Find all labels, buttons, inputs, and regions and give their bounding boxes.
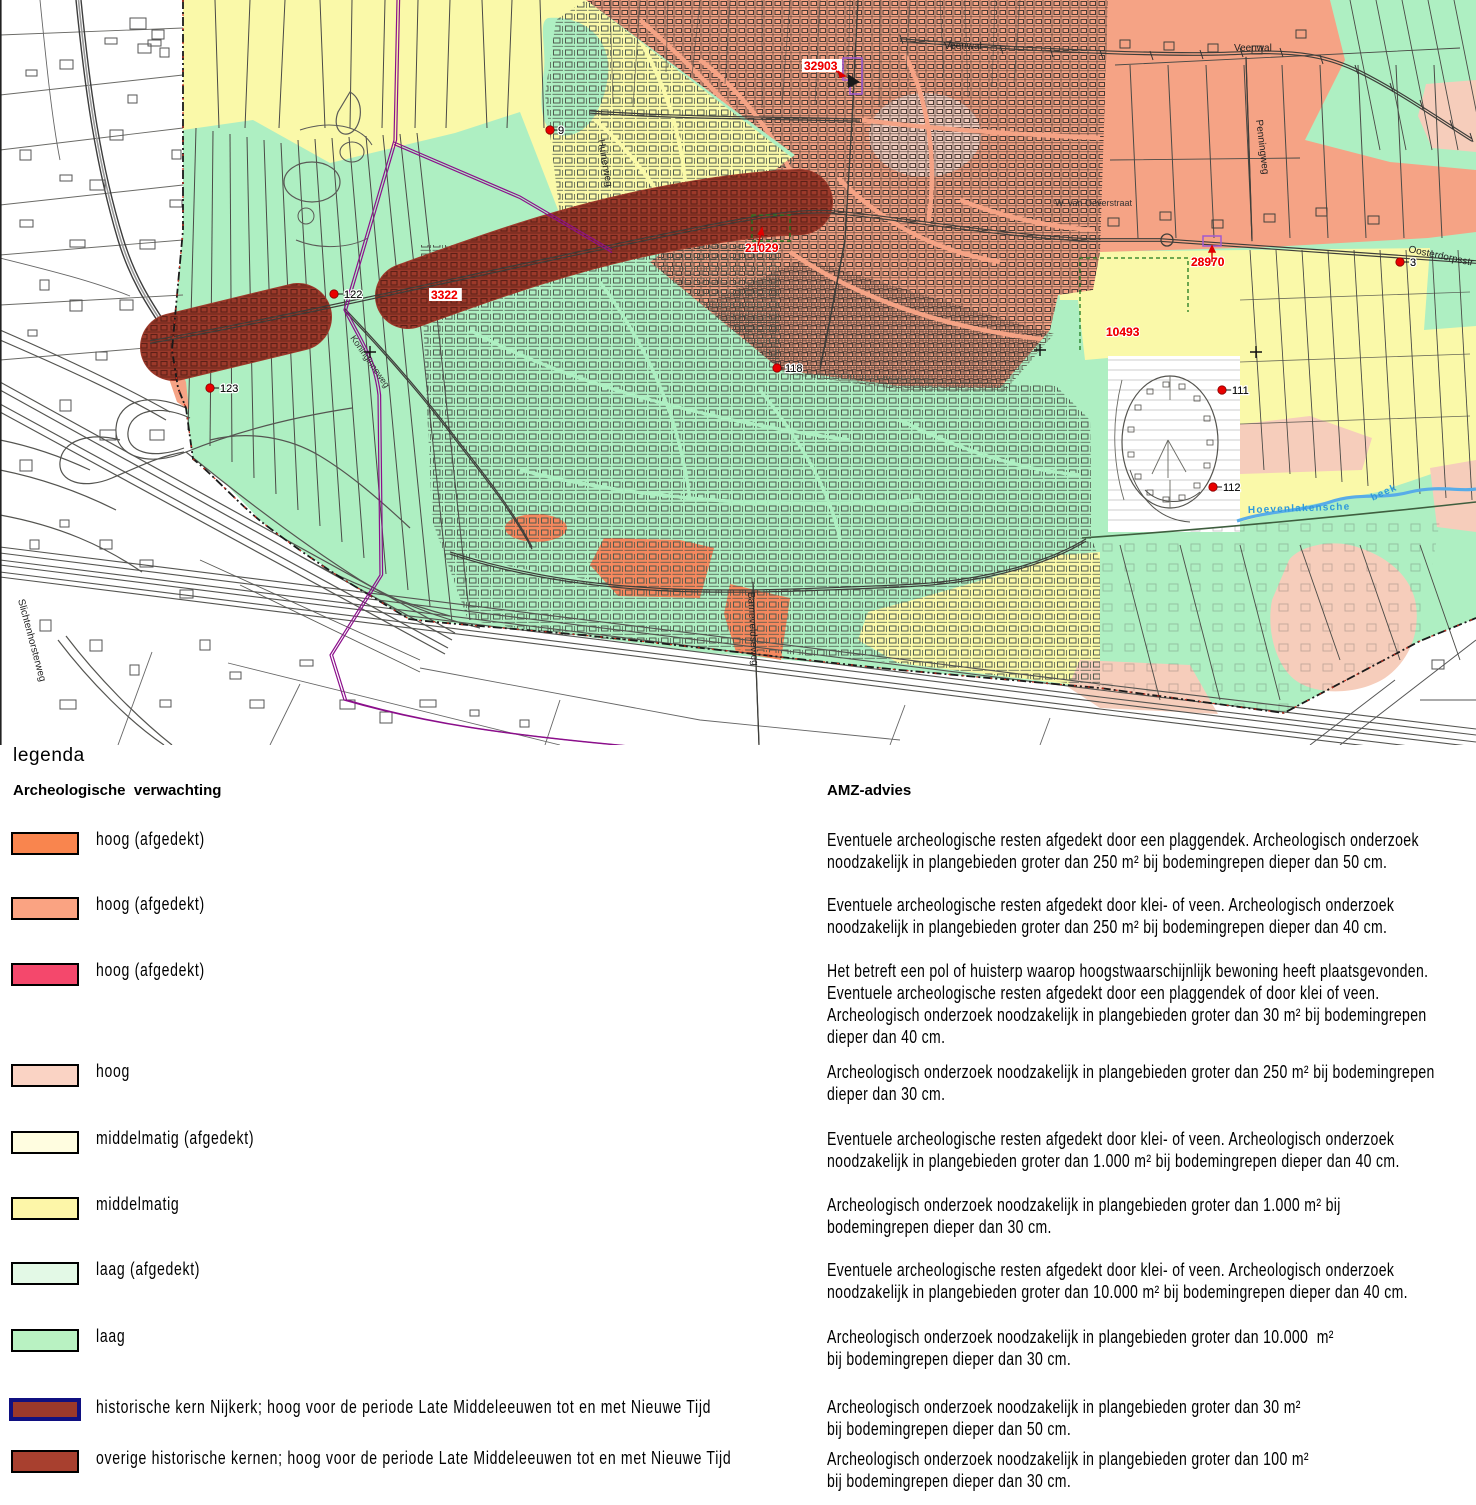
svg-text:118: 118 bbox=[785, 363, 803, 375]
svg-text:21029: 21029 bbox=[745, 241, 779, 255]
svg-text:28970: 28970 bbox=[1191, 255, 1225, 269]
svg-text:112: 112 bbox=[1223, 482, 1241, 494]
svg-text:9: 9 bbox=[558, 125, 564, 137]
svg-text:Veenwal: Veenwal bbox=[944, 41, 982, 52]
svg-text:123: 123 bbox=[220, 383, 238, 395]
svg-text:32903: 32903 bbox=[804, 59, 838, 73]
svg-text:111: 111 bbox=[1232, 385, 1249, 397]
svg-text:W. van Oeverstraat: W. van Oeverstraat bbox=[1055, 198, 1133, 208]
svg-text:3322: 3322 bbox=[431, 288, 458, 302]
svg-text:3: 3 bbox=[1410, 257, 1416, 269]
svg-text:10493: 10493 bbox=[1106, 325, 1140, 339]
svg-text:122: 122 bbox=[344, 289, 362, 301]
